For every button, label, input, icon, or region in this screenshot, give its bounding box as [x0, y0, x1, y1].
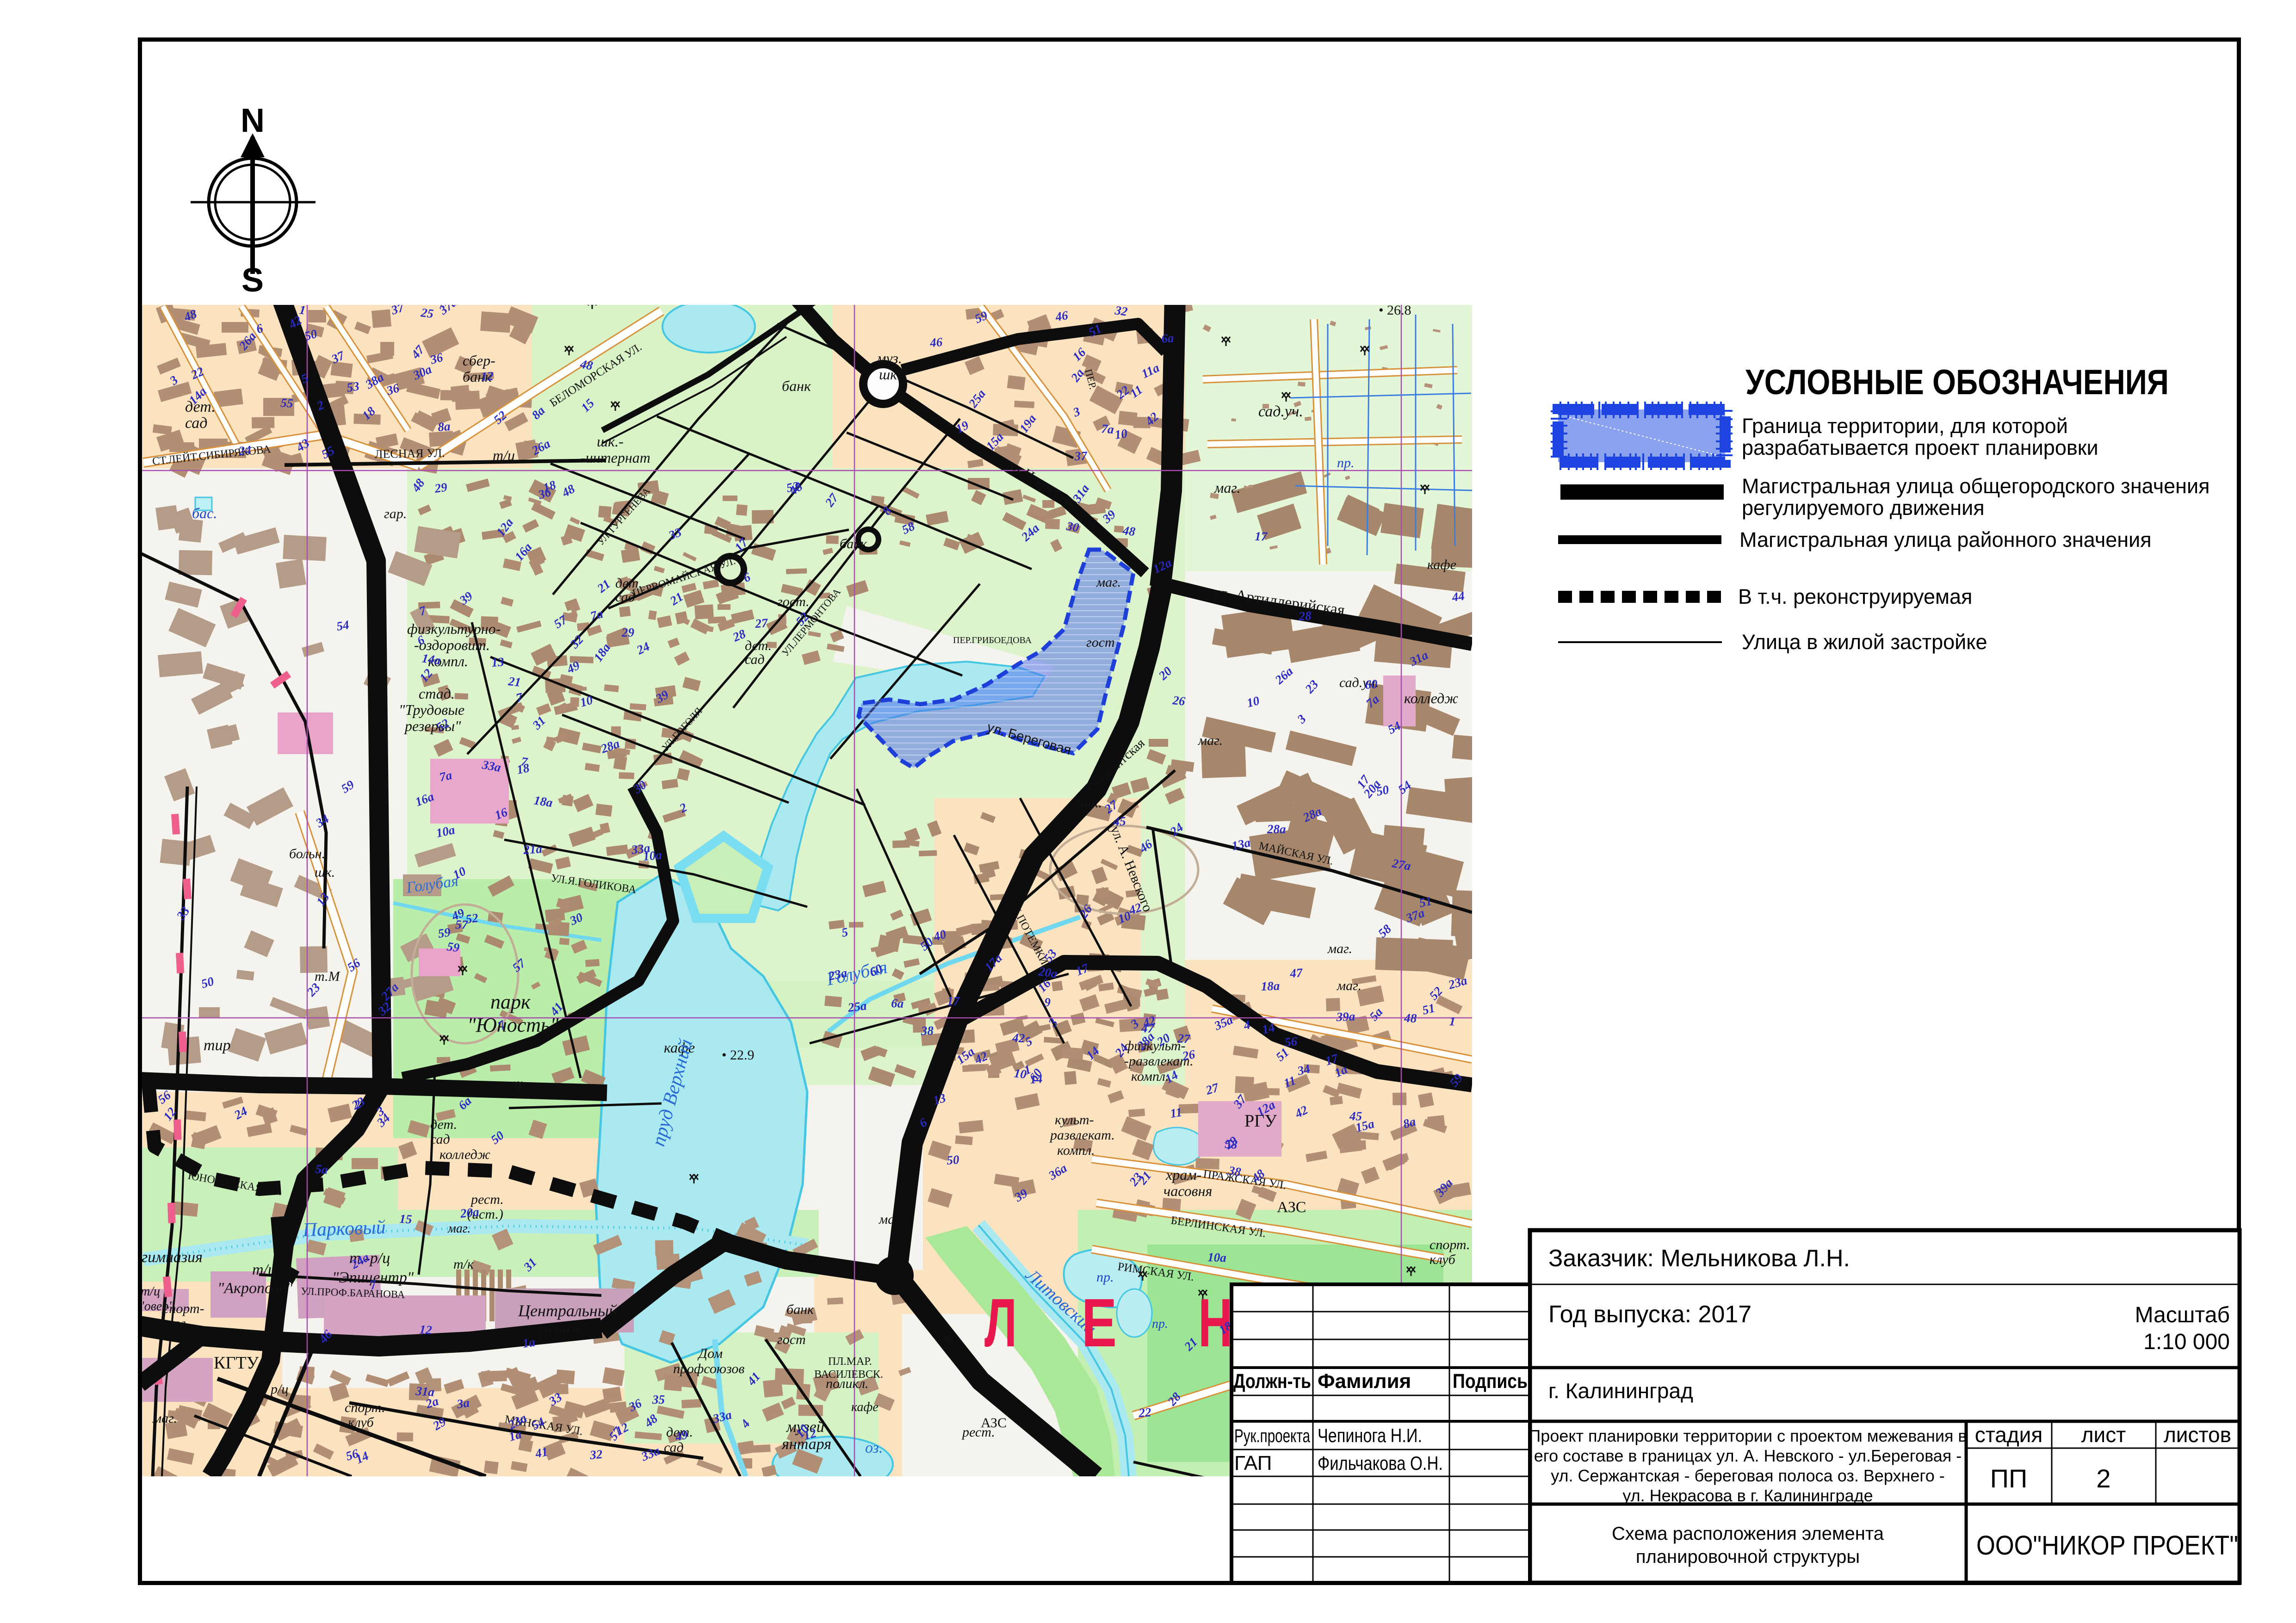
svg-text:АЗС: АЗС: [1277, 1199, 1306, 1216]
svg-text:стад.: стад.: [419, 685, 455, 702]
svg-text:дет.: дет.: [745, 638, 772, 653]
svg-text:рынок: рынок: [538, 1320, 583, 1338]
svg-text:храм-: храм-: [1165, 1166, 1201, 1183]
svg-text:колледж: колледж: [1404, 690, 1458, 706]
svg-text:56: 56: [1284, 1034, 1298, 1049]
svg-text:ВАСИЛЕВСК.: ВАСИЛЕВСК.: [814, 1369, 883, 1381]
svg-text:2: 2: [2096, 1464, 2110, 1493]
svg-text:лист: лист: [2081, 1423, 2126, 1447]
svg-text:часовня: часовня: [1163, 1183, 1212, 1199]
svg-text:8а: 8а: [437, 419, 451, 434]
svg-text:шк.: шк.: [1080, 794, 1102, 811]
svg-text:г. Калининград: г. Калининград: [1548, 1379, 1693, 1403]
svg-text:54: 54: [335, 618, 350, 633]
svg-text:маг.: маг.: [1327, 941, 1352, 956]
svg-text:сад: сад: [430, 1132, 450, 1147]
svg-text:20а: 20а: [459, 1205, 479, 1220]
svg-text:Масштаб: Масштаб: [2135, 1303, 2230, 1327]
svg-text:разрабатывается проект планиро: разрабатывается проект планировки: [1742, 436, 2098, 459]
svg-text:КГТУ: КГТУ: [214, 1353, 259, 1373]
svg-text:27: 27: [754, 616, 769, 631]
svg-text:гимназия: гимназия: [142, 1249, 203, 1266]
svg-text:22: 22: [1138, 1405, 1151, 1420]
svg-text:развлекат.: развлекат.: [1049, 1127, 1115, 1143]
svg-text:3а: 3а: [456, 1395, 470, 1411]
svg-text:Проект планировки территории с: Проект планировки территории с проектом …: [1529, 1426, 1967, 1445]
svg-text:39а: 39а: [1336, 1010, 1355, 1024]
svg-text:6а: 6а: [1161, 331, 1174, 346]
svg-text:УСЛОВНЫЕ ОБОЗНАЧЕНИЯ: УСЛОВНЫЕ ОБОЗНАЧЕНИЯ: [1745, 363, 2169, 402]
svg-text:ПЕР.ГРИБОЕДОВА: ПЕР.ГРИБОЕДОВА: [953, 635, 1032, 645]
svg-text:компл.: компл.: [1057, 1143, 1095, 1158]
svg-text:48: 48: [1404, 1011, 1417, 1025]
svg-text:45: 45: [1113, 814, 1126, 829]
svg-text:профсоюзов: профсоюзов: [673, 1361, 744, 1376]
svg-text:Схема расположения элемента: Схема расположения элемента: [1612, 1524, 1884, 1544]
svg-text:41: 41: [533, 1444, 549, 1461]
svg-text:гар.: гар.: [384, 506, 407, 521]
svg-text:регулируемого движения: регулируемого движения: [1742, 496, 1985, 520]
svg-text:резервы": резервы": [404, 718, 461, 734]
svg-text:50: 50: [946, 1152, 960, 1167]
svg-text:Магистральная улица районного: Магистральная улица районного значения: [1739, 528, 2152, 551]
svg-text:Магистральная улица общегородс: Магистральная улица общегородского значе…: [1742, 474, 2210, 498]
svg-text:оз.: оз.: [865, 1439, 883, 1456]
svg-text:17: 17: [947, 994, 960, 1008]
svg-text:ЛЕСНАЯ УЛ.: ЛЕСНАЯ УЛ.: [375, 446, 445, 461]
svg-text:сбер-: сбер-: [463, 352, 495, 369]
svg-text:Улица в жилой застройке: Улица в жилой застройке: [1742, 630, 1987, 654]
svg-text:банк: банк: [782, 378, 811, 394]
svg-text:колледж: колледж: [439, 1147, 490, 1162]
svg-text:компл.: компл.: [1131, 1069, 1169, 1084]
svg-text:18а: 18а: [533, 793, 554, 810]
svg-text:больн.: больн.: [289, 846, 325, 861]
svg-text:гост.: гост.: [777, 594, 810, 609]
svg-text:10а: 10а: [1207, 1250, 1227, 1264]
svg-text:маг.: маг.: [152, 1411, 177, 1426]
svg-text:сад: сад: [185, 415, 207, 432]
svg-text:маг.: маг.: [1337, 978, 1362, 993]
svg-text:55: 55: [280, 396, 294, 410]
svg-text:ул. Некрасова в г. Калининград: ул. Некрасова в г. Калининграде: [1622, 1486, 1873, 1505]
svg-text:шк.-: шк.-: [597, 433, 624, 450]
svg-text:пр.: пр.: [1337, 455, 1355, 471]
svg-text:ПЛ.МАР.: ПЛ.МАР.: [828, 1356, 872, 1368]
svg-text:24: 24: [237, 443, 252, 458]
svg-text:1:10 000: 1:10 000: [2143, 1330, 2230, 1354]
svg-text:"oвер": "oвер": [139, 1299, 174, 1313]
svg-text:Е: Е: [1082, 1285, 1117, 1361]
svg-text:25: 25: [420, 305, 434, 321]
svg-text:Граница территории, для которо: Граница территории, для которой: [1742, 414, 2068, 438]
svg-text:5а: 5а: [315, 1162, 328, 1177]
svg-text:гост: гост: [1086, 635, 1115, 650]
svg-text:1: 1: [1449, 1014, 1456, 1028]
svg-text:В т.ч. реконструируемая: В т.ч. реконструируемая: [1738, 585, 1972, 608]
svg-text:банк: банк: [786, 1302, 814, 1317]
svg-text:1а: 1а: [522, 1335, 536, 1350]
svg-text:14а: 14а: [421, 651, 441, 667]
svg-text:бас.: бас.: [192, 505, 217, 521]
svg-text:спорт.: спорт.: [345, 1400, 385, 1415]
svg-text:21а: 21а: [522, 842, 542, 857]
svg-text:17: 17: [1255, 529, 1268, 543]
svg-text:Рук.проекта: Рук.проекта: [1234, 1426, 1311, 1446]
svg-text:37: 37: [1074, 449, 1088, 463]
svg-text:25а: 25а: [847, 998, 867, 1015]
svg-text:зал: зал: [167, 1316, 186, 1331]
svg-text:13: 13: [491, 655, 504, 669]
svg-text:30: 30: [1065, 519, 1080, 534]
svg-text:20а: 20а: [1037, 964, 1058, 980]
svg-text:"Трудовые: "Трудовые: [399, 701, 464, 718]
svg-text:27: 27: [1177, 1031, 1191, 1046]
svg-text:парк: парк: [490, 991, 531, 1013]
svg-text:маг.: маг.: [879, 1212, 904, 1227]
svg-text:гост: гост: [777, 1332, 806, 1347]
svg-text:маг.: маг.: [1198, 733, 1223, 748]
svg-text:банк: банк: [840, 536, 867, 551]
svg-text:11: 11: [1169, 1105, 1183, 1121]
svg-text:28а: 28а: [1267, 822, 1286, 836]
svg-text:Заказчик: Мельникова Л.Н.: Заказчик: Мельникова Л.Н.: [1548, 1245, 1850, 1272]
svg-text:47: 47: [1289, 966, 1304, 980]
svg-text:57: 57: [455, 917, 469, 931]
svg-text:• 22.9: • 22.9: [722, 1047, 755, 1063]
svg-text:клуб: клуб: [1430, 1252, 1456, 1267]
svg-text:Парковый: Парковый: [302, 1217, 386, 1241]
svg-text:35: 35: [652, 1393, 665, 1406]
svg-text:59: 59: [437, 925, 452, 941]
svg-text:Должн-ть: Должн-ть: [1233, 1370, 1311, 1393]
svg-text:Фамилия: Фамилия: [1318, 1370, 1411, 1393]
svg-text:26: 26: [1171, 693, 1186, 708]
svg-text:ГАП: ГАП: [1234, 1452, 1272, 1474]
svg-text:"Акрополь": "Акрополь": [217, 1280, 293, 1297]
svg-text:Дом: Дом: [697, 1346, 723, 1361]
svg-text:14: 14: [1029, 1072, 1043, 1086]
svg-text:маг.: маг.: [1214, 479, 1240, 496]
svg-text:32: 32: [1114, 303, 1128, 319]
svg-text:38: 38: [1227, 1163, 1242, 1179]
svg-text:ПП: ПП: [1990, 1464, 2028, 1493]
svg-text:44: 44: [1451, 588, 1466, 604]
svg-text:спорт.: спорт.: [1430, 1237, 1470, 1252]
svg-text:его составе в границах ул. А.: его составе в границах ул. А. Невского -…: [1534, 1446, 1962, 1465]
svg-text:46: 46: [1054, 308, 1069, 324]
svg-text:9: 9: [1044, 995, 1051, 1009]
svg-text:ООО"НИКОР ПРОЕКТ": ООО"НИКОР ПРОЕКТ": [1976, 1530, 2238, 1561]
svg-text:шк.: шк.: [879, 366, 901, 383]
svg-text:10: 10: [1114, 426, 1128, 442]
svg-text:6а: 6а: [891, 996, 904, 1010]
svg-text:АЗС: АЗС: [981, 1415, 1007, 1431]
svg-text:клуб: клуб: [348, 1415, 374, 1430]
svg-text:38: 38: [921, 1024, 934, 1038]
svg-text:S: S: [241, 262, 264, 299]
svg-text:кафе: кафе: [851, 1400, 879, 1414]
svg-text:Год выпуска: 2017: Год выпуска: 2017: [1548, 1301, 1751, 1328]
svg-text:пр.: пр.: [1096, 1270, 1114, 1285]
svg-text:т/к: т/к: [453, 1257, 474, 1272]
svg-text:28: 28: [1298, 609, 1312, 623]
svg-text:Чепинога Н.И.: Чепинога Н.И.: [1318, 1425, 1422, 1446]
svg-text:маг.: маг.: [447, 1221, 470, 1236]
svg-text:60: 60: [1364, 677, 1378, 692]
svg-text:листов: листов: [2164, 1423, 2231, 1447]
svg-text:7а: 7а: [1101, 421, 1114, 436]
svg-text:Л: Л: [984, 1285, 1017, 1361]
svg-text:т.М: т.М: [315, 969, 341, 984]
svg-text:шк.: шк.: [315, 865, 335, 880]
svg-text:стадия: стадия: [1975, 1423, 2043, 1447]
svg-text:12: 12: [419, 1322, 433, 1337]
svg-text:р/ц: р/ц: [270, 1381, 288, 1397]
svg-text:т/ц: т/ц: [493, 447, 515, 464]
svg-text:дет.: дет.: [430, 1117, 457, 1132]
svg-text:29: 29: [621, 626, 635, 639]
svg-text:N: N: [241, 102, 265, 139]
svg-text:тир: тир: [204, 1037, 231, 1054]
svg-text:Фильчакова О.Н.: Фильчакова О.Н.: [1318, 1452, 1443, 1474]
svg-text:59: 59: [446, 939, 460, 955]
svg-text:планировочной структуры: планировочной структуры: [1636, 1547, 1860, 1567]
svg-text:12: 12: [481, 369, 494, 384]
svg-text:29: 29: [433, 480, 448, 496]
svg-text:46: 46: [929, 335, 943, 350]
svg-text:48: 48: [1121, 523, 1136, 539]
svg-text:маг.: маг.: [1096, 575, 1121, 590]
svg-text:пр.: пр.: [1152, 1317, 1168, 1331]
svg-text:53: 53: [346, 379, 360, 395]
svg-text:сад: сад: [745, 652, 765, 667]
svg-text:Подпись: Подпись: [1453, 1370, 1528, 1393]
svg-text:48: 48: [579, 357, 594, 372]
svg-text:42: 42: [1012, 1031, 1025, 1045]
svg-text:муз.: муз.: [876, 350, 902, 366]
svg-text:18а: 18а: [1261, 979, 1280, 993]
svg-text:15: 15: [399, 1212, 413, 1226]
svg-text:т/ц: т/ц: [141, 1284, 160, 1299]
svg-text:т/ц: т/ц: [252, 1261, 276, 1278]
svg-text:кафе: кафе: [1427, 557, 1456, 572]
svg-text:культ-: культ-: [1055, 1112, 1094, 1127]
svg-text:32: 32: [589, 1447, 603, 1462]
svg-text:сад.уч.: сад.уч.: [1258, 403, 1303, 420]
svg-text:33а: 33а: [630, 841, 651, 857]
svg-text:10: 10: [1013, 1066, 1027, 1081]
svg-text:21: 21: [507, 674, 521, 689]
svg-text:"Юность": "Юность": [467, 1014, 559, 1036]
svg-text:45: 45: [1349, 1109, 1362, 1123]
svg-text:Центральный: Центральный: [518, 1301, 617, 1320]
svg-text:-интернат: -интернат: [581, 449, 650, 466]
svg-text:ул. Сержантская - береговая по: ул. Сержантская - береговая полоса оз. В…: [1551, 1466, 1944, 1485]
